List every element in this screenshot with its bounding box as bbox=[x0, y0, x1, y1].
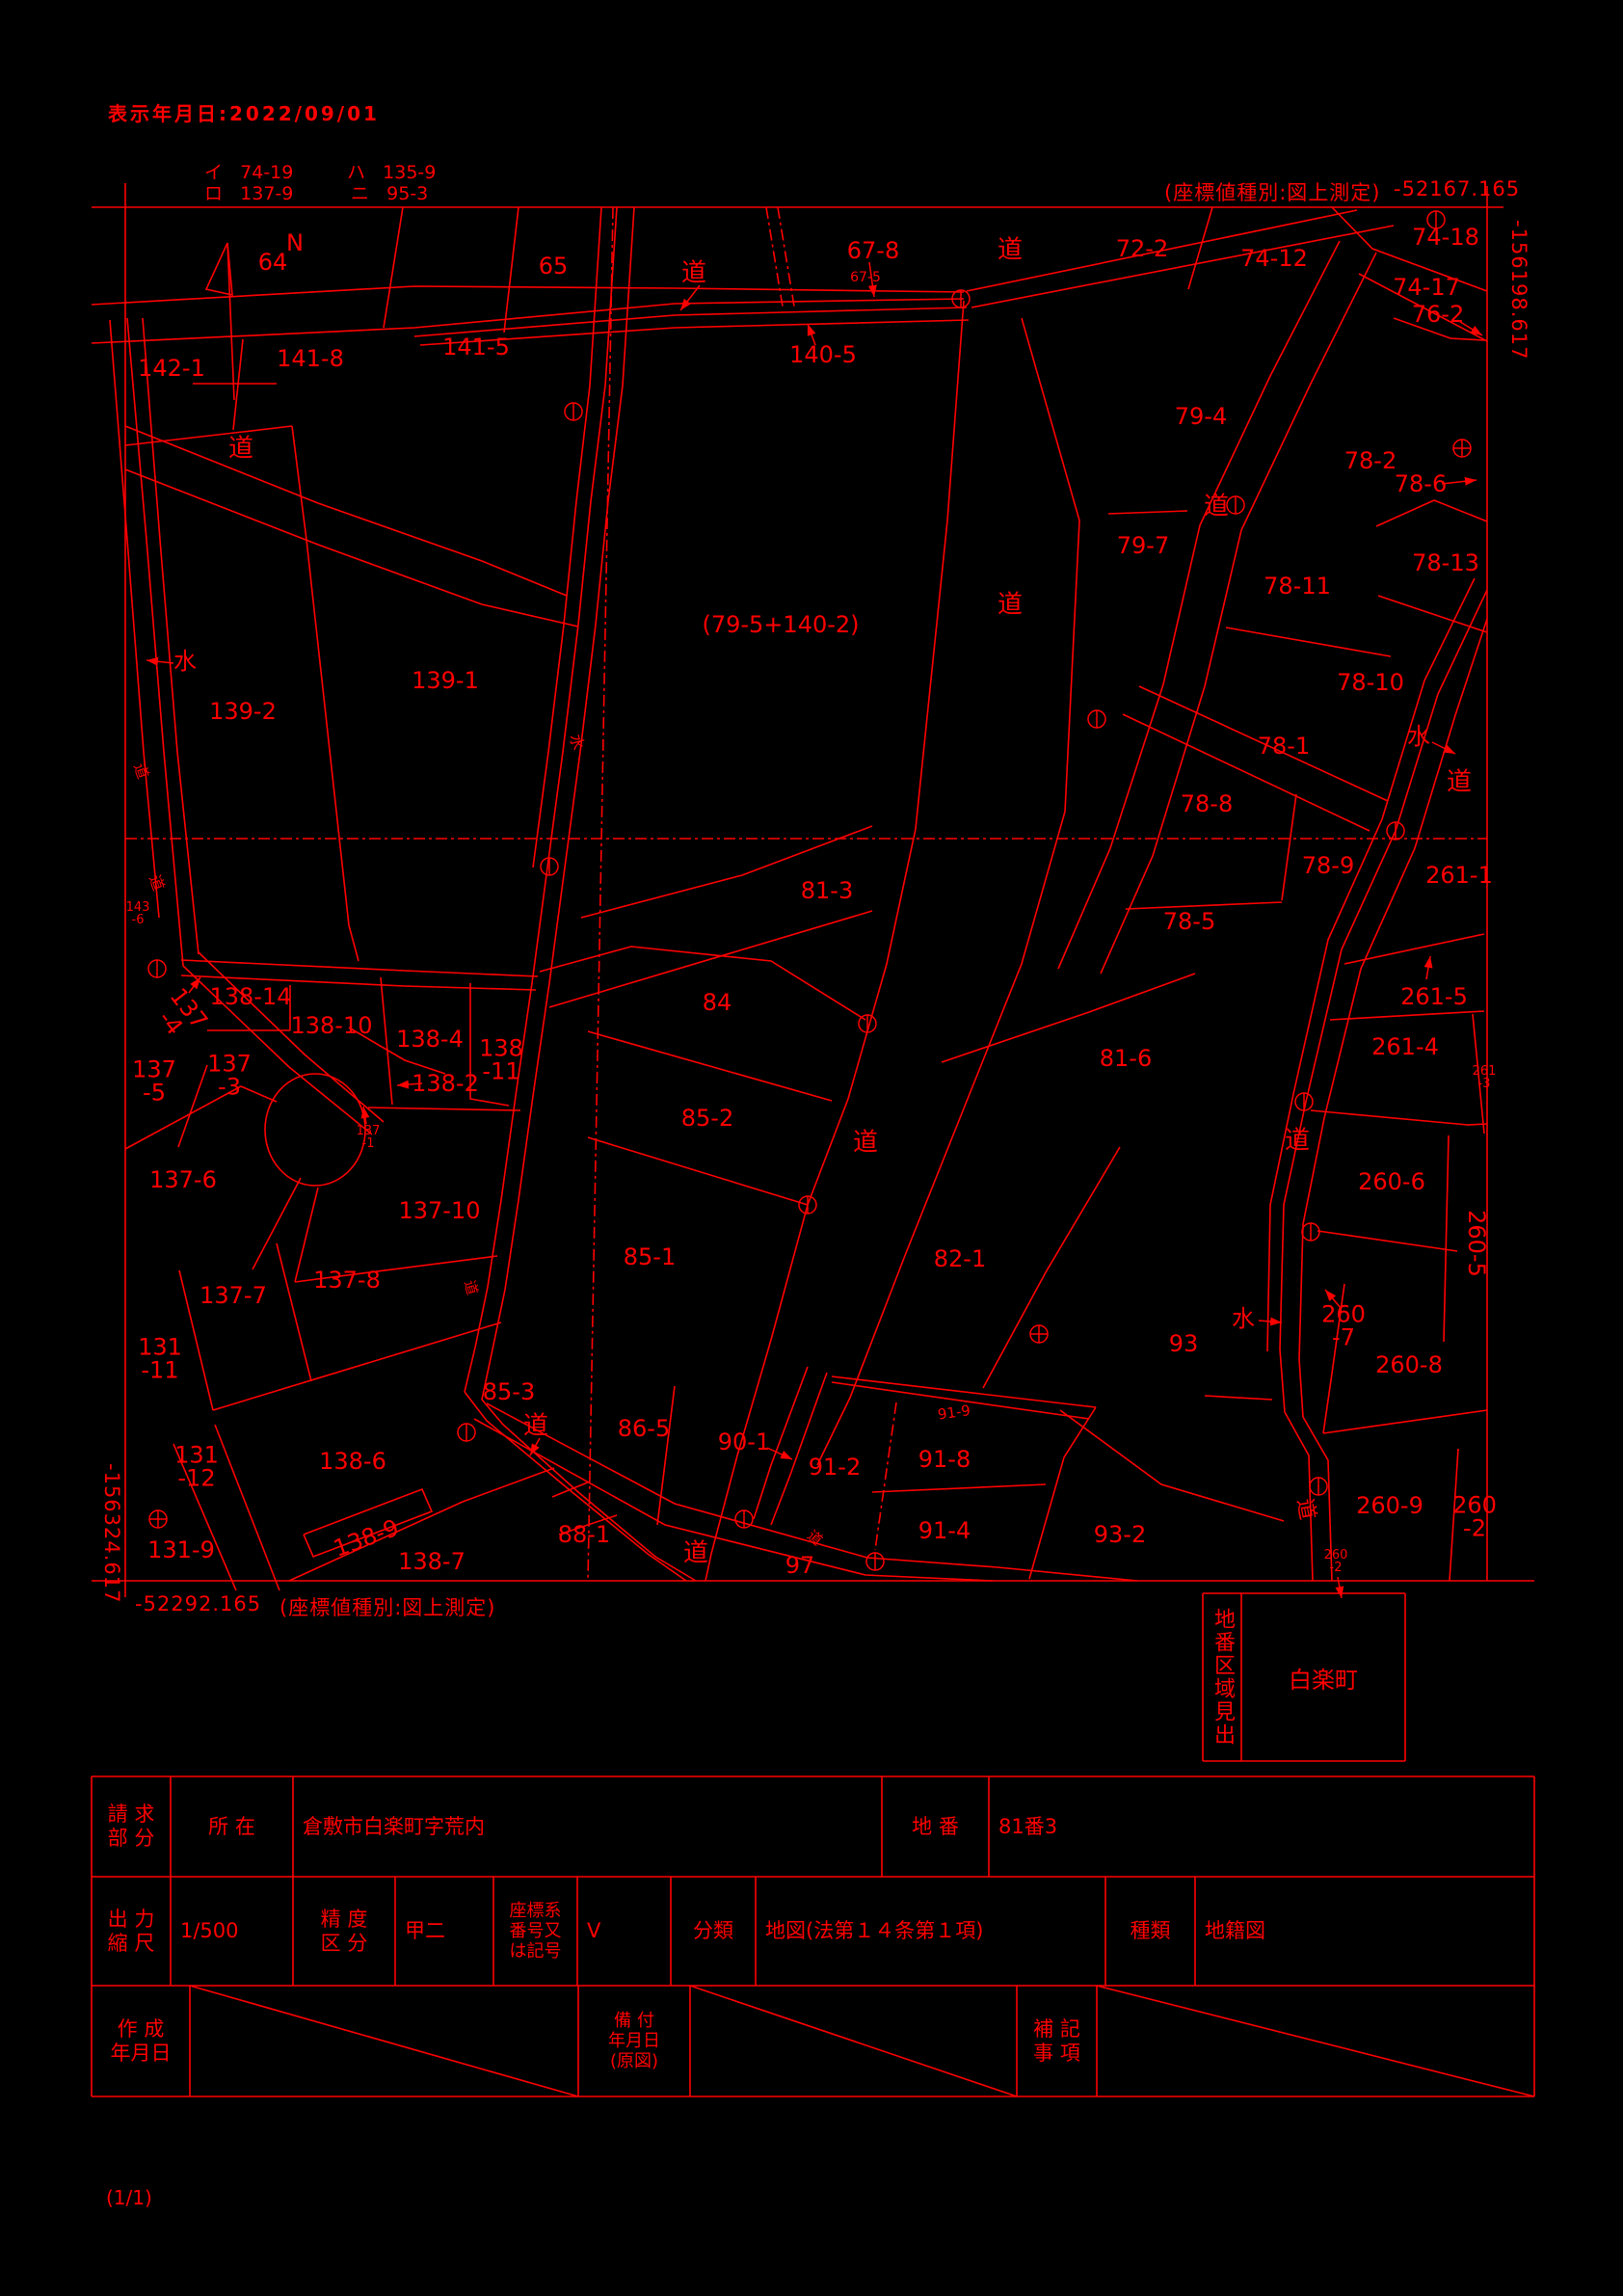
parcel-label: 79-7 bbox=[1117, 534, 1169, 557]
parcel-label: 93-2 bbox=[1094, 1523, 1146, 1546]
parcel-label: 72-2 bbox=[1116, 237, 1168, 260]
table-location-value: 倉敷市白楽町字荒内 bbox=[293, 1776, 882, 1877]
table-classification-value: 地図(法第１４条第１項) bbox=[756, 1877, 1105, 1986]
parcel-label: 97 bbox=[785, 1554, 815, 1577]
parcel-label: 水 bbox=[173, 650, 197, 673]
map-line bbox=[277, 1243, 311, 1381]
parcel-label: 141-8 bbox=[277, 347, 344, 370]
map-line bbox=[1330, 1011, 1484, 1020]
parcel-label: 67-8 bbox=[847, 239, 899, 262]
parcel-label: 138-4 bbox=[396, 1028, 464, 1051]
parcel-label: 261-5 bbox=[1400, 985, 1468, 1008]
display-date: 表示年月日:2022/09/01 bbox=[108, 98, 380, 126]
map-line bbox=[1205, 1396, 1272, 1400]
pond-outline bbox=[265, 1074, 365, 1186]
parcel-label: 138 -11 bbox=[479, 1037, 523, 1084]
map-line bbox=[1444, 1135, 1449, 1342]
parcel-label: 260 -2 bbox=[1452, 1494, 1497, 1541]
parcel-label: 261 -3 bbox=[1473, 1065, 1497, 1091]
table-output-scale-value: 1/500 bbox=[171, 1877, 293, 1986]
parcel-label: N bbox=[286, 231, 304, 254]
leader-arrow-icon bbox=[1426, 956, 1430, 979]
parcel-label: 140-5 bbox=[789, 343, 857, 366]
index-box-title: 地番区域見出 bbox=[1203, 1593, 1241, 1761]
parcel-label: 78-13 bbox=[1412, 551, 1479, 574]
table-lot-number-label: 地 番 bbox=[882, 1776, 989, 1877]
parcel-label: 74-17 bbox=[1393, 276, 1460, 299]
parcel-label: 138-6 bbox=[319, 1450, 386, 1473]
parcel-label: 88-1 bbox=[558, 1523, 610, 1546]
parcel-label: 74-12 bbox=[1240, 247, 1308, 270]
parcel-label: 78-6 bbox=[1395, 472, 1447, 495]
parcel-label: 137-10 bbox=[398, 1199, 480, 1222]
parcel-label: 139-2 bbox=[209, 700, 277, 723]
map-line bbox=[213, 1322, 501, 1410]
map-line bbox=[872, 1484, 1046, 1492]
parcel-label: 道 bbox=[683, 1541, 708, 1567]
parcel-label: 道 bbox=[1447, 770, 1472, 796]
parcel-label: 91-8 bbox=[918, 1448, 971, 1471]
parcel-label: 67-5 bbox=[850, 271, 881, 284]
table-kind-label: 種類 bbox=[1105, 1877, 1195, 1986]
parcel-label: 260-6 bbox=[1358, 1170, 1425, 1193]
parcel-label: 141-5 bbox=[442, 335, 510, 359]
table-creation-date-label: 作 成 年月日 bbox=[92, 1986, 190, 2096]
parcel-label: 道 bbox=[228, 437, 253, 463]
map-line bbox=[92, 299, 964, 343]
map-line bbox=[1299, 619, 1487, 1581]
parcel-label: 道 bbox=[1204, 494, 1229, 521]
parcel-label: 137-7 bbox=[200, 1284, 267, 1307]
parcel-label: 78-11 bbox=[1264, 574, 1331, 598]
parcel-label: 261-4 bbox=[1371, 1035, 1439, 1058]
parcel-label: 85-1 bbox=[624, 1245, 676, 1268]
parcel-label: 260 -2 bbox=[1324, 1549, 1348, 1575]
table-coord-system-label: 座標系 番号又 は記号 bbox=[493, 1877, 577, 1986]
map-line bbox=[504, 207, 519, 333]
table-coord-system-value: V bbox=[577, 1877, 671, 1986]
parcel-label: 260-8 bbox=[1375, 1353, 1443, 1376]
parcel-label: 82-1 bbox=[934, 1247, 986, 1270]
parcel-label: (79-5+140-2) bbox=[702, 613, 859, 636]
table-filing-date-label: 備 付 年月日 (原図) bbox=[578, 1986, 690, 2096]
coord-type-note-top: (座標値種別:図上測定) bbox=[1164, 177, 1380, 206]
parcel-label: 道 bbox=[998, 238, 1023, 264]
map-line bbox=[1376, 500, 1487, 526]
parcel-label: 道 bbox=[1285, 1129, 1310, 1155]
map-line bbox=[588, 207, 613, 1581]
parcel-label: 78-2 bbox=[1344, 449, 1397, 472]
map-line bbox=[143, 318, 199, 954]
ref-value: 95-3 bbox=[386, 183, 428, 204]
parcel-label: 78-9 bbox=[1302, 854, 1354, 877]
map-line bbox=[1226, 627, 1391, 656]
map-line bbox=[690, 1986, 1017, 2096]
parcel-label: 131 -12 bbox=[174, 1444, 219, 1491]
parcel-label: 道 bbox=[523, 1414, 548, 1440]
parcel-label: 131-9 bbox=[147, 1538, 215, 1562]
map-line bbox=[368, 1108, 520, 1110]
coord-x-bottom: -52292.165 bbox=[135, 1592, 261, 1615]
map-line bbox=[125, 426, 567, 596]
parcel-label: 85-3 bbox=[483, 1380, 535, 1403]
coord-y-left: -156324.617 bbox=[100, 1463, 123, 1604]
map-line bbox=[215, 1425, 279, 1590]
map-line bbox=[1060, 1410, 1284, 1521]
map-line bbox=[92, 286, 964, 305]
map-line bbox=[1029, 1407, 1096, 1579]
map-line bbox=[817, 318, 1079, 1465]
map-line bbox=[381, 977, 392, 1105]
ref-mark: ニ bbox=[351, 183, 369, 204]
parcel-label: 142-1 bbox=[138, 357, 205, 380]
parcel-label: 84 bbox=[703, 991, 732, 1014]
parcel-label: 90-1 bbox=[718, 1430, 770, 1454]
map-line bbox=[983, 1147, 1120, 1388]
parcel-label: 65 bbox=[539, 254, 569, 278]
parcel-label: 138-2 bbox=[412, 1072, 479, 1095]
table-precision-class-value: 甲二 bbox=[395, 1877, 493, 1986]
map-line bbox=[227, 243, 234, 400]
map-line bbox=[190, 1986, 578, 2096]
parcel-label: 137-6 bbox=[149, 1168, 217, 1191]
map-line bbox=[1282, 794, 1296, 900]
map-line bbox=[1323, 1410, 1487, 1433]
coord-type-note-bottom: (座標値種別:図上測定) bbox=[279, 1592, 495, 1621]
map-line bbox=[533, 207, 601, 868]
map-line bbox=[1058, 241, 1340, 969]
parcel-label: 91-4 bbox=[918, 1519, 971, 1542]
map-line bbox=[766, 207, 783, 307]
map-line bbox=[233, 339, 243, 430]
table-classification-label: 分類 bbox=[671, 1877, 756, 1986]
map-line bbox=[482, 207, 634, 1400]
parcel-label: 85-2 bbox=[681, 1107, 733, 1130]
parcel-label: 91-2 bbox=[809, 1455, 861, 1479]
parcel-label: 道 bbox=[998, 593, 1023, 619]
parcel-label: 260-9 bbox=[1356, 1494, 1423, 1517]
parcel-label: 76-2 bbox=[1412, 303, 1464, 326]
parcel-label: 78-10 bbox=[1337, 671, 1404, 694]
map-line bbox=[778, 207, 794, 307]
map-line bbox=[1108, 511, 1187, 514]
parcel-label: 86-5 bbox=[618, 1417, 670, 1440]
table-precision-class-label: 精 度 区 分 bbox=[293, 1877, 395, 1986]
map-line bbox=[1344, 934, 1484, 964]
parcel-label: 道 bbox=[853, 1131, 878, 1157]
map-line bbox=[875, 1402, 896, 1550]
parcel-label: 261-1 bbox=[1425, 864, 1493, 887]
parcel-label: 138-10 bbox=[290, 1014, 372, 1037]
parcel-label: 131 -11 bbox=[138, 1336, 182, 1383]
map-line bbox=[771, 1373, 827, 1525]
leader-arrow-icon bbox=[767, 1448, 792, 1459]
coord-y-right: -156198.617 bbox=[1507, 220, 1530, 360]
table-location-label: 所 在 bbox=[171, 1776, 293, 1877]
page-number: (1/1) bbox=[106, 2186, 152, 2209]
map-line bbox=[181, 960, 538, 976]
parcel-label: 260-5 bbox=[1465, 1210, 1488, 1277]
coord-x-top: -52167.165 bbox=[1394, 177, 1520, 200]
parcel-label: 道 bbox=[1292, 1497, 1317, 1522]
map-line bbox=[1317, 1231, 1457, 1251]
parcel-label: 道 bbox=[681, 261, 706, 287]
leader-arrow-icon bbox=[1442, 480, 1477, 484]
ref-mark: ロ bbox=[204, 183, 223, 204]
parcel-label: 水 bbox=[1407, 725, 1430, 748]
map-line bbox=[1311, 1110, 1487, 1125]
table-remarks-label: 補 記 事 項 bbox=[1017, 1986, 1097, 2096]
parcel-label: 139-1 bbox=[412, 669, 479, 692]
map-line bbox=[942, 974, 1195, 1062]
map-line bbox=[657, 1386, 675, 1525]
map-line bbox=[1097, 1986, 1534, 2096]
map-line bbox=[1378, 596, 1487, 632]
parcel-label: 81-6 bbox=[1100, 1047, 1152, 1070]
parcel-label: 260 -7 bbox=[1321, 1303, 1366, 1350]
parcel-label: 137-8 bbox=[313, 1268, 381, 1292]
leader-arrow-icon bbox=[1259, 1321, 1282, 1322]
map-line bbox=[588, 1031, 832, 1101]
parcel-label: 81-3 bbox=[801, 879, 853, 902]
parcel-label: 138-7 bbox=[398, 1550, 466, 1573]
parcel-label: 79-4 bbox=[1175, 405, 1227, 428]
map-line bbox=[253, 1178, 301, 1269]
parcel-label: 138-14 bbox=[209, 985, 291, 1008]
table-request-part-label: 請 求 部 分 bbox=[92, 1776, 171, 1877]
parcel-label: 137 -3 bbox=[207, 1053, 252, 1100]
parcel-label: 93 bbox=[1169, 1332, 1199, 1355]
map-line bbox=[705, 301, 964, 1581]
index-box-town-name: 白楽町 bbox=[1241, 1593, 1405, 1761]
map-line bbox=[971, 226, 1394, 307]
map-line bbox=[125, 469, 578, 627]
parcel-label: 78-5 bbox=[1163, 910, 1215, 933]
ref-value: 137-9 bbox=[240, 183, 293, 204]
map-line bbox=[552, 1482, 590, 1497]
parcel-label: 水 bbox=[1232, 1307, 1255, 1330]
parcel-label: 143 -6 bbox=[126, 901, 150, 927]
parcel-label: 78-8 bbox=[1181, 792, 1233, 815]
map-line bbox=[1188, 207, 1212, 289]
parcel-label: 137 -1 bbox=[357, 1125, 381, 1151]
cadastral-map-page: 表示年月日:2022/09/01 イ 74-19 ロ 137-9 ハ 135-9… bbox=[0, 0, 1623, 2296]
parcel-label: 137 -5 bbox=[132, 1058, 176, 1106]
table-output-scale-label: 出 力 縮 尺 bbox=[92, 1877, 171, 1986]
parcel-label: 78-1 bbox=[1258, 734, 1310, 758]
table-kind-value: 地籍図 bbox=[1195, 1877, 1534, 1986]
ref-point-ro: ロ 137-9 bbox=[204, 179, 293, 205]
map-line bbox=[588, 1137, 808, 1205]
parcel-label: 74-18 bbox=[1412, 226, 1479, 249]
table-lot-number-value: 81番3 bbox=[989, 1776, 1534, 1877]
parcel-label: 64 bbox=[258, 251, 288, 274]
map-line bbox=[1123, 714, 1370, 831]
ref-point-ni: ニ 95-3 bbox=[351, 179, 428, 205]
map-line bbox=[384, 207, 403, 328]
